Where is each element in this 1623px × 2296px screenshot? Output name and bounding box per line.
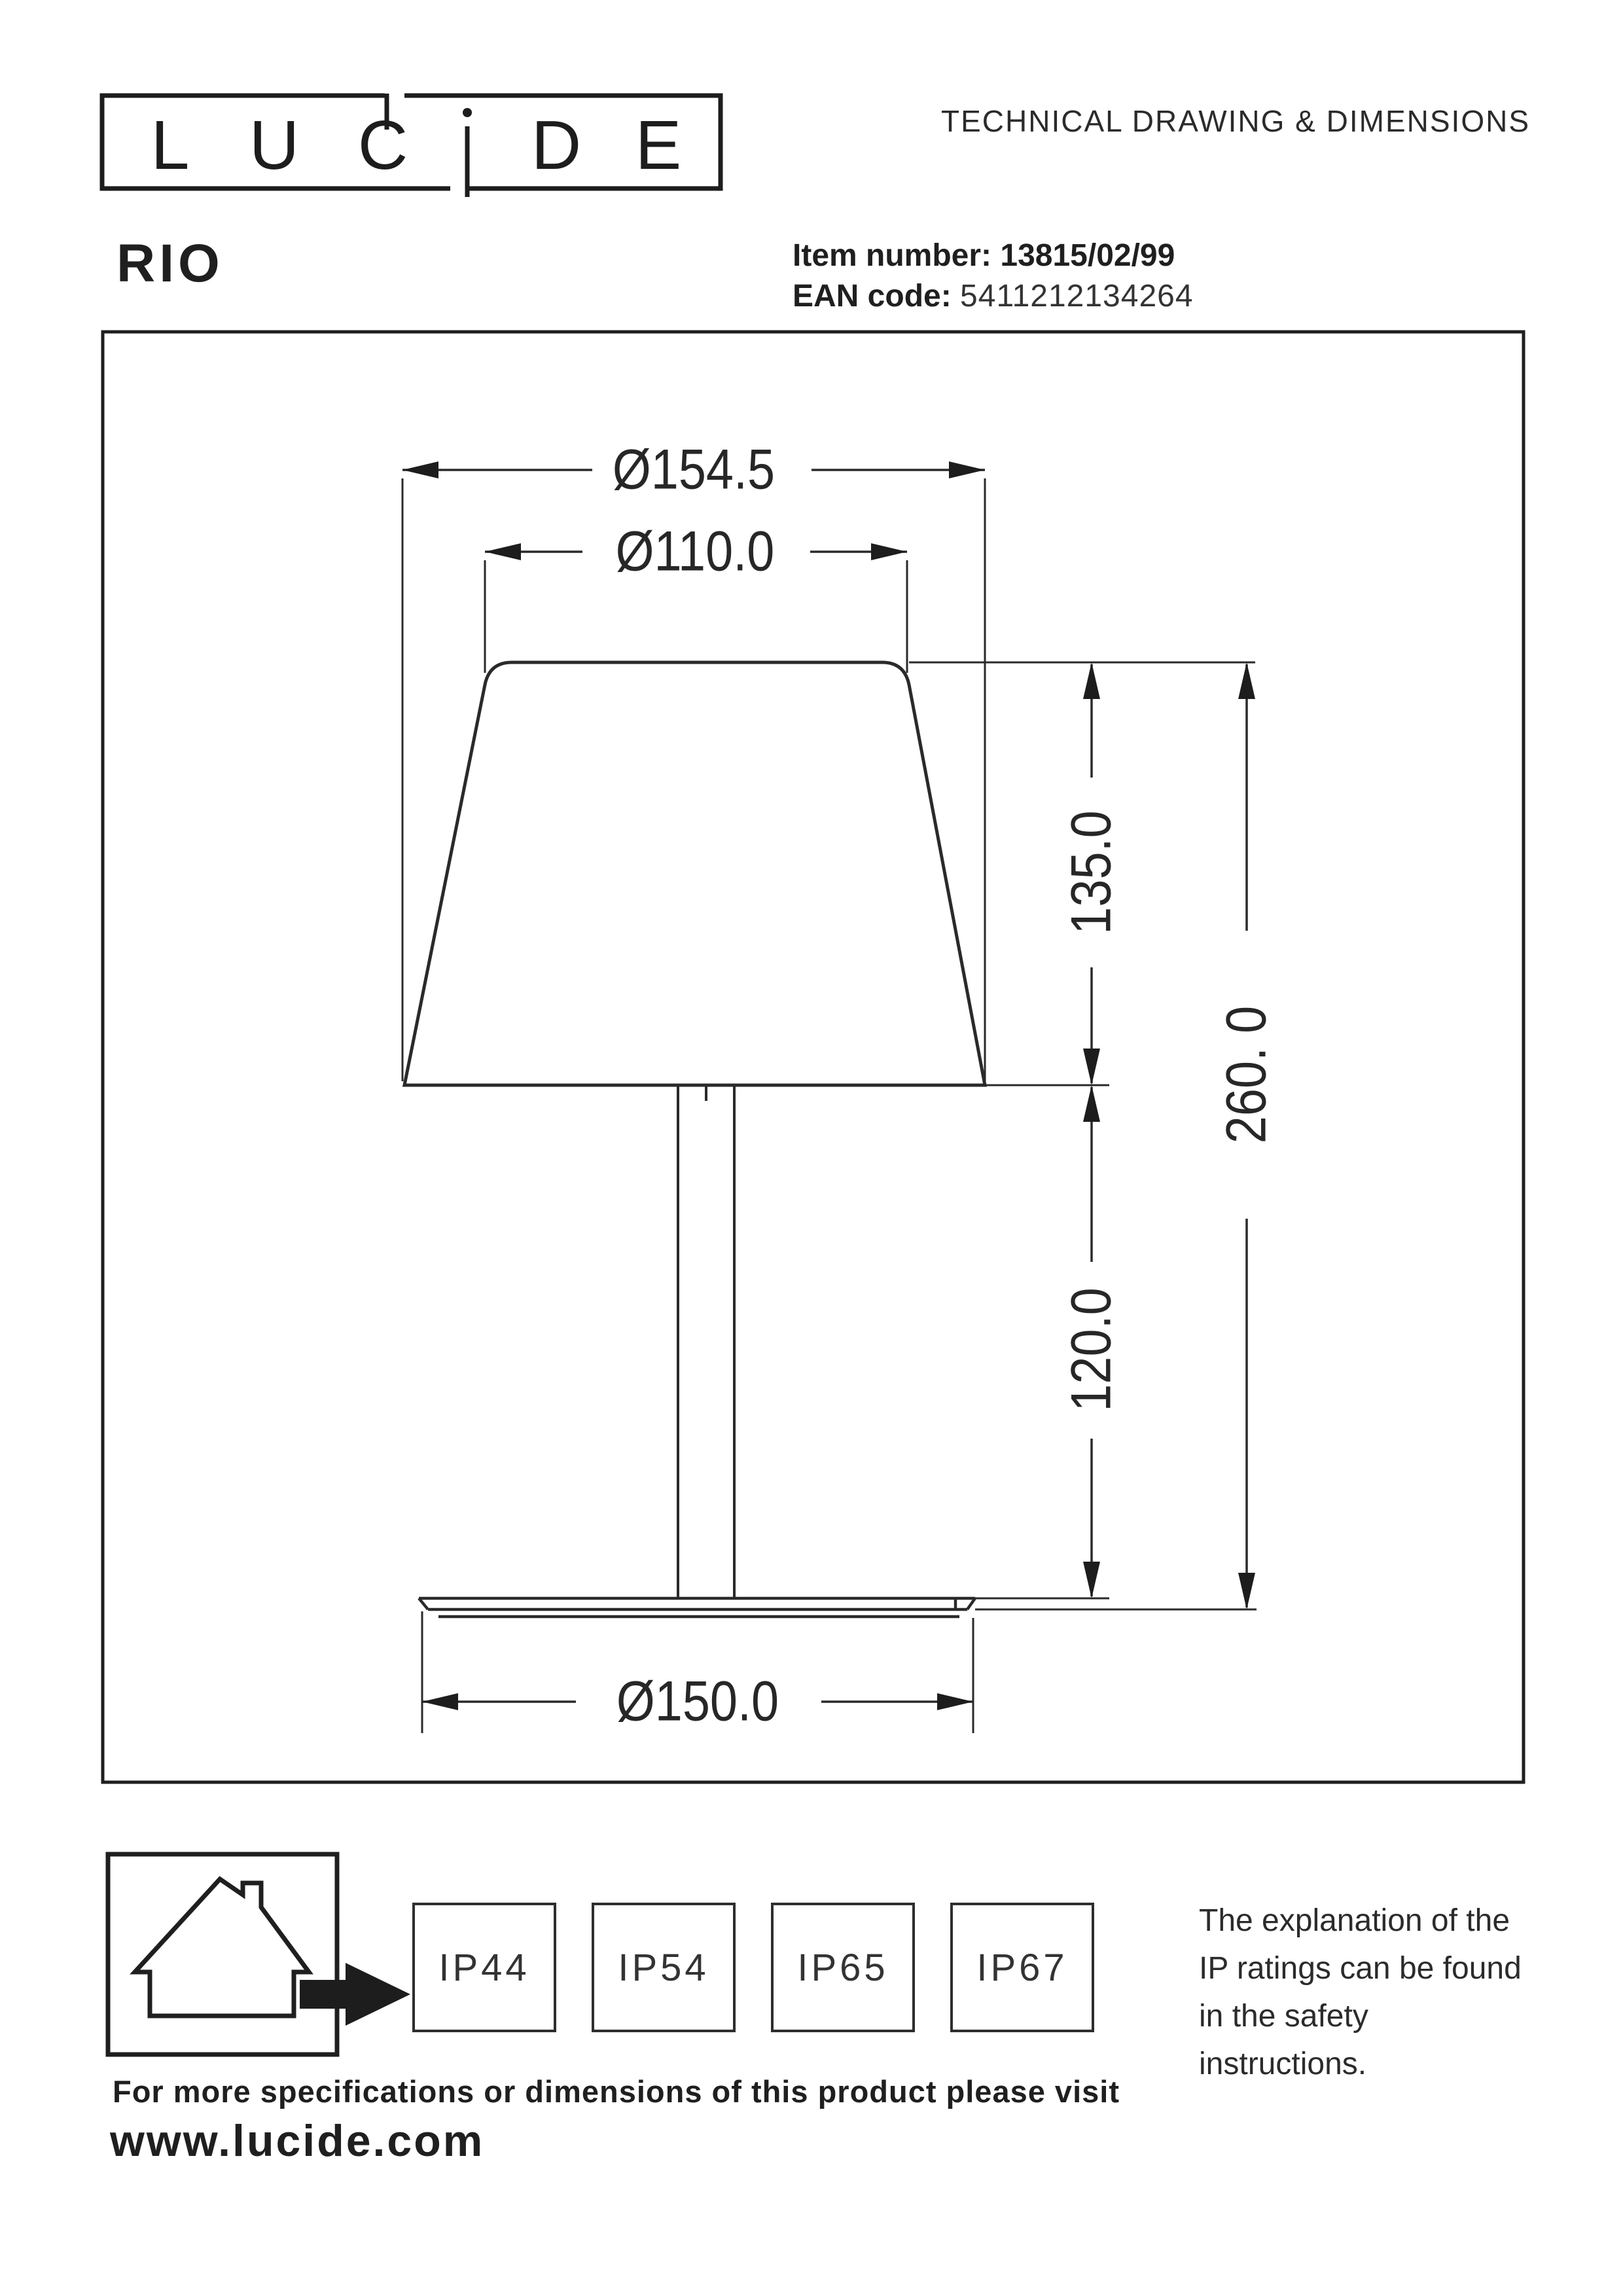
dim-label-shade-outer: Ø154.5 <box>613 438 775 503</box>
page-title: TECHNICAL DRAWING & DIMENSIONS <box>785 103 1530 139</box>
ip-note-line: in the safety <box>1199 1992 1522 2040</box>
logo-letter: D <box>531 107 582 184</box>
product-name: RIO <box>116 233 224 295</box>
ean-code-value: 5411212134264 <box>960 279 1193 314</box>
ip-rating-badge-ip65: IP65 <box>771 1903 915 2032</box>
drawing-frame <box>103 332 1524 1782</box>
item-number-label: Item number: <box>793 238 991 273</box>
item-number-row: Item number: 13815/02/99 <box>793 236 1194 276</box>
logo-letter-i-dot <box>463 108 472 117</box>
ip-rating-badge-ip67: IP67 <box>950 1903 1094 2032</box>
ip-note-line: The explanation of the <box>1199 1897 1522 1945</box>
item-number-value: 13815/02/99 <box>1000 238 1175 273</box>
lucide-logo: L U C D E <box>102 94 721 197</box>
indoor-use-pictogram <box>108 1854 410 2054</box>
dim-label-base-diameter: Ø150.0 <box>616 1670 779 1734</box>
logo-letter: C <box>358 107 408 184</box>
logo-letter: L <box>151 107 190 184</box>
footer-website-link: www.lucide.com <box>110 2115 484 2166</box>
product-codes: Item number: 13815/02/99 EAN code: 54112… <box>793 236 1194 317</box>
footer-text: For more specifications or dimensions of… <box>113 2073 1120 2109</box>
ip-note-line: IP ratings can be found <box>1199 1945 1522 1992</box>
ip-rating-badge-ip54: IP54 <box>592 1903 736 2032</box>
ean-code-label: EAN code: <box>793 279 952 314</box>
logo-box-outline <box>102 96 721 188</box>
datasheet-page: L U C D E <box>0 0 1623 2296</box>
ip-note: The explanation of the IP ratings can be… <box>1199 1897 1522 2088</box>
dim-label-total-height: 260. 0 <box>1215 1006 1279 1143</box>
logo-letter: U <box>249 107 300 184</box>
dim-label-shade-inner: Ø110.0 <box>616 520 775 584</box>
ip-note-line: instructions. <box>1199 2040 1522 2088</box>
ip-rating-badge-ip44: IP44 <box>412 1903 556 2032</box>
logo-letter: E <box>635 107 682 184</box>
dim-label-stem-height: 120.0 <box>1060 1287 1124 1411</box>
ean-code-row: EAN code: 5411212134264 <box>793 276 1194 317</box>
dim-label-shade-height: 135.0 <box>1060 810 1124 934</box>
